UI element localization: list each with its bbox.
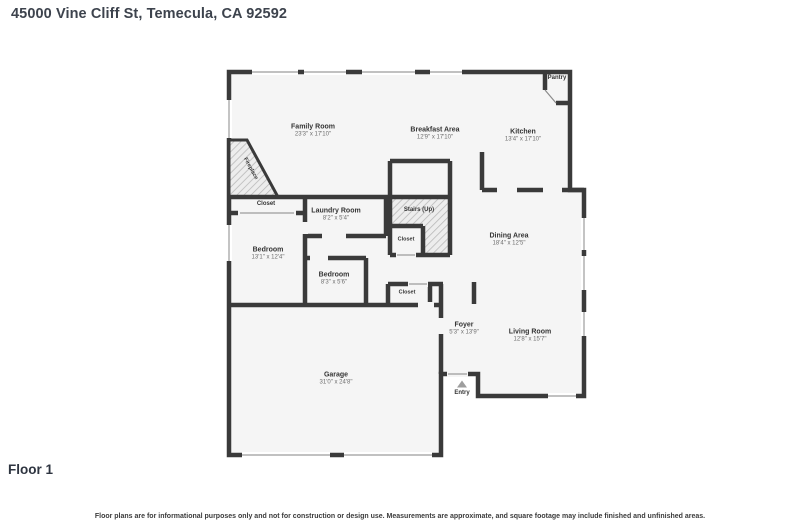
room-name: Dining Area — [489, 232, 528, 241]
room-label-breakfast-area: Breakfast Area 12'9" x 17'10" — [410, 126, 459, 143]
room-label-living-room: Living Room 12'8" x 15'7" — [509, 328, 551, 345]
floor-plan-drawing — [0, 0, 800, 530]
room-label-dining-area: Dining Area 18'4" x 12'5" — [489, 232, 528, 249]
room-name: Entry — [454, 390, 469, 398]
room-name: Closet — [398, 236, 415, 243]
room-label-bedroom-left: Bedroom 13'1" x 12'4" — [252, 246, 285, 263]
room-dims: 23'3" x 17'10" — [291, 132, 335, 140]
room-name: Foyer — [449, 321, 479, 330]
room-label-laundry-room: Laundry Room 8'2" x 5'4" — [311, 207, 360, 224]
room-name: Stairs (Up) — [404, 207, 434, 215]
floor-plan-page: 45000 Vine Cliff St, Temecula, CA 92592 — [0, 0, 800, 530]
room-label-garage: Garage 31'0" x 24'8" — [320, 371, 353, 388]
room-label-kitchen: Kitchen 13'4" x 17'10" — [505, 128, 541, 145]
room-label-closet-top: Closet — [257, 201, 275, 209]
room-dims: 8'3" x 5'6" — [319, 280, 350, 288]
room-dims: 8'2" x 5'4" — [311, 216, 360, 224]
room-label-stairs-closet: Closet — [398, 236, 415, 243]
room-dims: 31'0" x 24'8" — [320, 380, 353, 388]
room-label-closet-center: Closet — [399, 289, 416, 296]
room-dims: 12'9" x 17'10" — [410, 135, 459, 143]
room-name: Kitchen — [505, 128, 541, 137]
room-label-entry: Entry — [454, 390, 469, 398]
room-label-family-room: Family Room 23'3" x 17'10" — [291, 123, 335, 140]
room-label-pantry: Pantry — [548, 75, 567, 83]
room-name: Closet — [399, 289, 416, 296]
floor-label: Floor 1 — [8, 462, 53, 477]
room-label-bedroom-small: Bedroom 8'3" x 5'6" — [319, 271, 350, 288]
room-name: Family Room — [291, 123, 335, 132]
room-name: Bedroom — [252, 246, 285, 255]
room-name: Breakfast Area — [410, 126, 459, 135]
room-name: Garage — [320, 371, 353, 380]
room-name: Laundry Room — [311, 207, 360, 216]
room-dims: 12'8" x 15'7" — [509, 337, 551, 345]
room-label-stairs: Stairs (Up) — [404, 207, 434, 215]
room-dims: 13'4" x 17'10" — [505, 137, 541, 145]
room-label-foyer: Foyer 5'3" x 13'9" — [449, 321, 479, 338]
room-name: Pantry — [548, 75, 567, 83]
room-name: Bedroom — [319, 271, 350, 280]
entry-arrow-icon — [457, 381, 467, 388]
room-name: Living Room — [509, 328, 551, 337]
room-dims: 18'4" x 12'5" — [489, 241, 528, 249]
room-dims: 13'1" x 12'4" — [252, 255, 285, 263]
room-name: Closet — [257, 201, 275, 209]
disclaimer-text: Floor plans are for informational purpos… — [0, 513, 800, 520]
room-dims: 5'3" x 13'9" — [449, 330, 479, 338]
